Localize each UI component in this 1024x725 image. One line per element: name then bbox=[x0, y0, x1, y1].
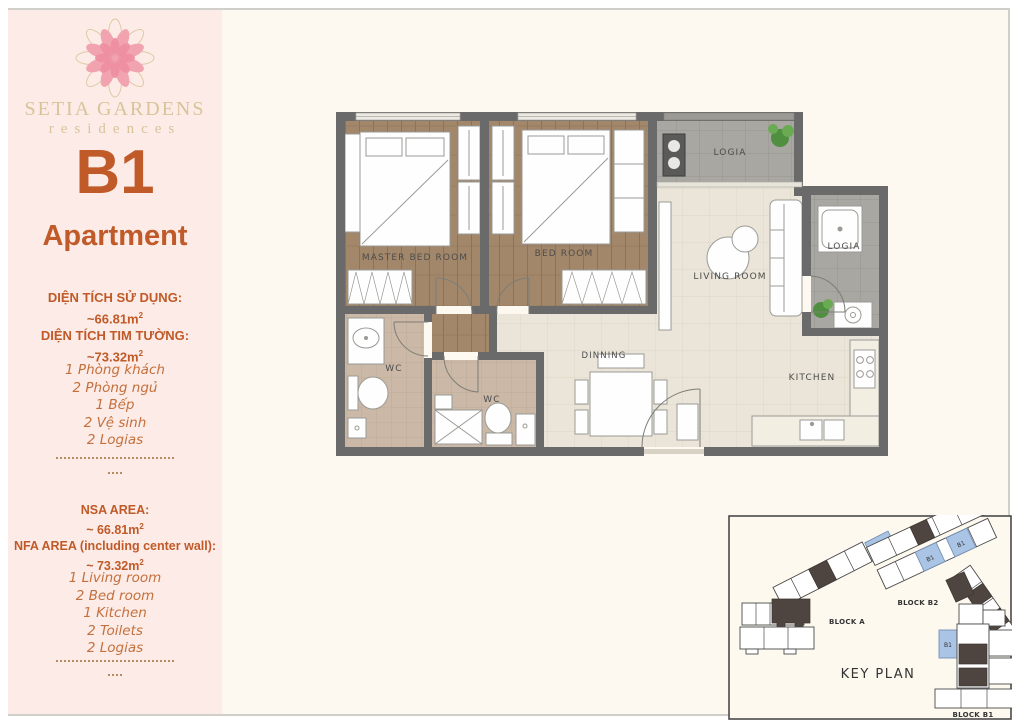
block-b2-label: BLOCK B2 bbox=[897, 599, 938, 607]
vi-area2-label: DIỆN TÍCH TIM TƯỜNG: bbox=[8, 327, 222, 345]
brand-flower-icon bbox=[63, 18, 167, 98]
divider bbox=[108, 674, 122, 676]
area-info-vietnamese: DIỆN TÍCH SỬ DỤNG: ~66.81m2 DIỆN TÍCH TI… bbox=[8, 289, 222, 366]
list-item: 2 Bed room bbox=[8, 588, 222, 606]
list-item: 1 Living room bbox=[8, 570, 222, 588]
en-area1-label: NSA AREA: bbox=[8, 502, 222, 519]
label-dinning: DINNING bbox=[582, 351, 627, 361]
list-item: 1 Kitchen bbox=[8, 605, 222, 623]
list-item: 2 Phòng ngủ bbox=[8, 380, 222, 398]
vi-area1-value: ~66.81m2 bbox=[8, 307, 222, 328]
page: SETIA GARDENS residences B1 Apartment DI… bbox=[8, 8, 1010, 716]
key-plan-title: KEY PLAN bbox=[841, 667, 916, 682]
brand-name: SETIA GARDENS bbox=[8, 98, 222, 121]
label-kitchen: KITCHEN bbox=[789, 373, 836, 383]
unit-b1-highlight: B1 bbox=[944, 642, 952, 649]
list-item: 2 Toilets bbox=[8, 623, 222, 641]
block-b1-label: BLOCK B1 bbox=[952, 711, 993, 719]
room-list-vietnamese: 1 Phòng khách 2 Phòng ngủ 1 Bếp 2 Vệ sin… bbox=[8, 362, 222, 450]
divider bbox=[56, 660, 174, 662]
en-area1-value: ~ 66.81m2 bbox=[8, 519, 222, 539]
label-logia-right: LOGIA bbox=[827, 242, 860, 252]
unit-code: B1 bbox=[8, 142, 222, 204]
label-logia-top: LOGIA bbox=[713, 148, 746, 158]
label-wc-common: WC bbox=[483, 395, 500, 405]
key-plan: B1 BLOCK A bbox=[728, 515, 1012, 720]
divider bbox=[56, 457, 174, 459]
list-item: 2 Logias bbox=[8, 640, 222, 658]
brand-subtitle: residences bbox=[8, 121, 222, 138]
list-item: 1 Phòng khách bbox=[8, 362, 222, 380]
label-master-bedroom: MASTER BED ROOM bbox=[362, 253, 468, 263]
block-a-label: BLOCK A bbox=[829, 618, 865, 626]
vi-area1-label: DIỆN TÍCH SỬ DỤNG: bbox=[8, 289, 222, 307]
label-bedroom: BED ROOM bbox=[535, 249, 594, 259]
floor-plan: MASTER BED ROOM BED ROOM LOGIA LIVING RO… bbox=[332, 108, 892, 460]
label-wc-master: WC bbox=[385, 364, 402, 374]
label-living-room: LIVING ROOM bbox=[693, 272, 766, 282]
en-area2-label: NFA AREA (including center wall): bbox=[8, 538, 222, 555]
room-list-english: 1 Living room 2 Bed room 1 Kitchen 2 Toi… bbox=[8, 570, 222, 658]
list-item: 2 Logias bbox=[8, 432, 222, 450]
unit-type: Apartment bbox=[8, 220, 222, 253]
list-item: 1 Bếp bbox=[8, 397, 222, 415]
list-item: 2 Vệ sinh bbox=[8, 415, 222, 433]
area-info-english: NSA AREA: ~ 66.81m2 NFA AREA (including … bbox=[8, 502, 222, 574]
brochure-page: { "sidebar": { "brand_name": "SETIA GARD… bbox=[0, 0, 1024, 725]
sidebar: SETIA GARDENS residences B1 Apartment DI… bbox=[8, 10, 222, 714]
divider bbox=[108, 472, 122, 474]
